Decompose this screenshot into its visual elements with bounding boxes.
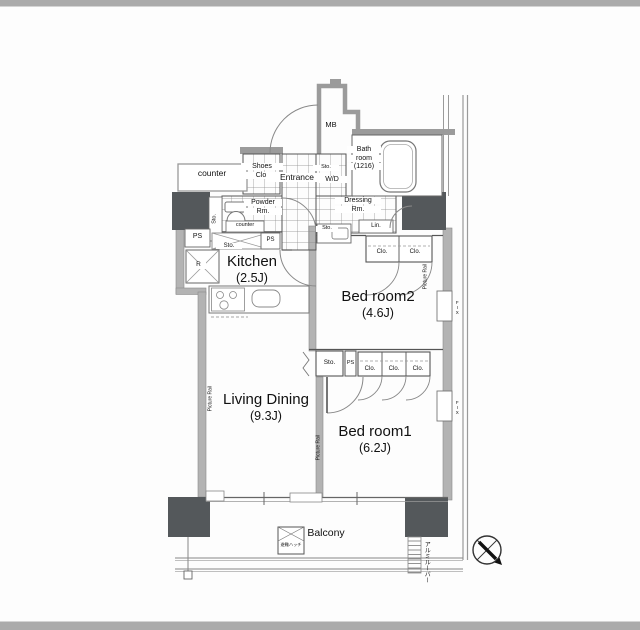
living-dining-name: Living Dining [206, 392, 326, 408]
balcony-label: Balcony [286, 528, 366, 539]
exterior-edge-lines [463, 95, 468, 560]
mid-closet-label-1: Clo. [358, 366, 382, 372]
pillar-top-right [402, 192, 446, 230]
balcony-post [184, 571, 192, 579]
north-arrow-compass [473, 536, 502, 565]
folding-door-icon [303, 352, 309, 376]
stove-icon [212, 288, 245, 311]
frame-band-bottom [0, 622, 640, 630]
sink-icon [252, 290, 280, 307]
kitchen-counter [209, 286, 309, 317]
aluminum-louver-label: アルミルーバー [423, 538, 429, 586]
floor-plan: counter Shoes Clo. Entrance Sto. W/D MB … [0, 0, 640, 630]
kitchen-ps-label: PS [261, 237, 280, 243]
ladder-strip [408, 537, 421, 573]
mb-vent [330, 79, 341, 86]
dressing-sto-label: Sto. [316, 226, 338, 232]
bed2-size: (4.6J) [318, 307, 438, 320]
kitchen-size: (2.5J) [192, 272, 312, 285]
pillar-bottom-left [168, 497, 210, 537]
frame-band-top [0, 0, 640, 7]
kitchen-sto-label: Sto. [216, 243, 242, 249]
fix-label-1: FIX [454, 297, 459, 317]
entrance-door-arc [270, 105, 318, 153]
escape-hatch-label: 避難ハッチ [278, 543, 304, 548]
bath-label-2: room [347, 155, 381, 162]
mid-closet-label-3: Clo. [406, 366, 430, 372]
bath-label-1: Bath [347, 146, 381, 153]
bathtub-icon [380, 141, 416, 192]
pillar-top-left [172, 192, 210, 230]
picture-rail-right: Picture Rail [423, 255, 428, 299]
powder-counter-label: counter [227, 223, 263, 229]
bed2-name: Bed room2 [318, 289, 438, 305]
dressing-room-label: Dressing [335, 197, 381, 204]
ps-left-label: PS [185, 233, 210, 240]
powder-room-label: Powder [244, 199, 282, 206]
pillar-bottom-right [405, 497, 448, 537]
living-dining-size: (9.3J) [206, 410, 326, 423]
linen-label: Lin. [359, 223, 393, 229]
window-sash [290, 493, 322, 502]
bed1-size: (6.2J) [315, 442, 435, 455]
shoes-closet-label: Shoes [241, 163, 283, 170]
mid-closet-label-2: Clo. [382, 366, 406, 372]
bath-label-3: (1216) [347, 163, 381, 170]
fix-window-2 [437, 391, 452, 421]
bed2-closet-label-1: Clo. [369, 249, 395, 255]
bed1-door-arc [327, 377, 363, 413]
kitchen-name: Kitchen [192, 254, 312, 270]
mid-sto-label: Sto. [316, 360, 343, 367]
powder-room-label2: Rm. [244, 208, 282, 215]
meter-box-label: MB [317, 121, 345, 129]
counter-top-label: counter [186, 169, 238, 178]
dressing-room-label2: Rm. [335, 206, 381, 213]
picture-rail-mid: Picture Rail [316, 426, 321, 470]
mid-ps-label: PS [345, 361, 356, 367]
fix-window-1 [437, 291, 452, 321]
washer-sto-label: Sto. [313, 165, 339, 171]
powder-sto-label: Sto. [213, 208, 219, 229]
bed1-name: Bed room1 [315, 424, 435, 440]
washer-dryer-label: W/D [317, 176, 347, 183]
picture-rail-left: Picture Rail [208, 377, 213, 421]
fix-label-2: FIX [454, 397, 459, 417]
